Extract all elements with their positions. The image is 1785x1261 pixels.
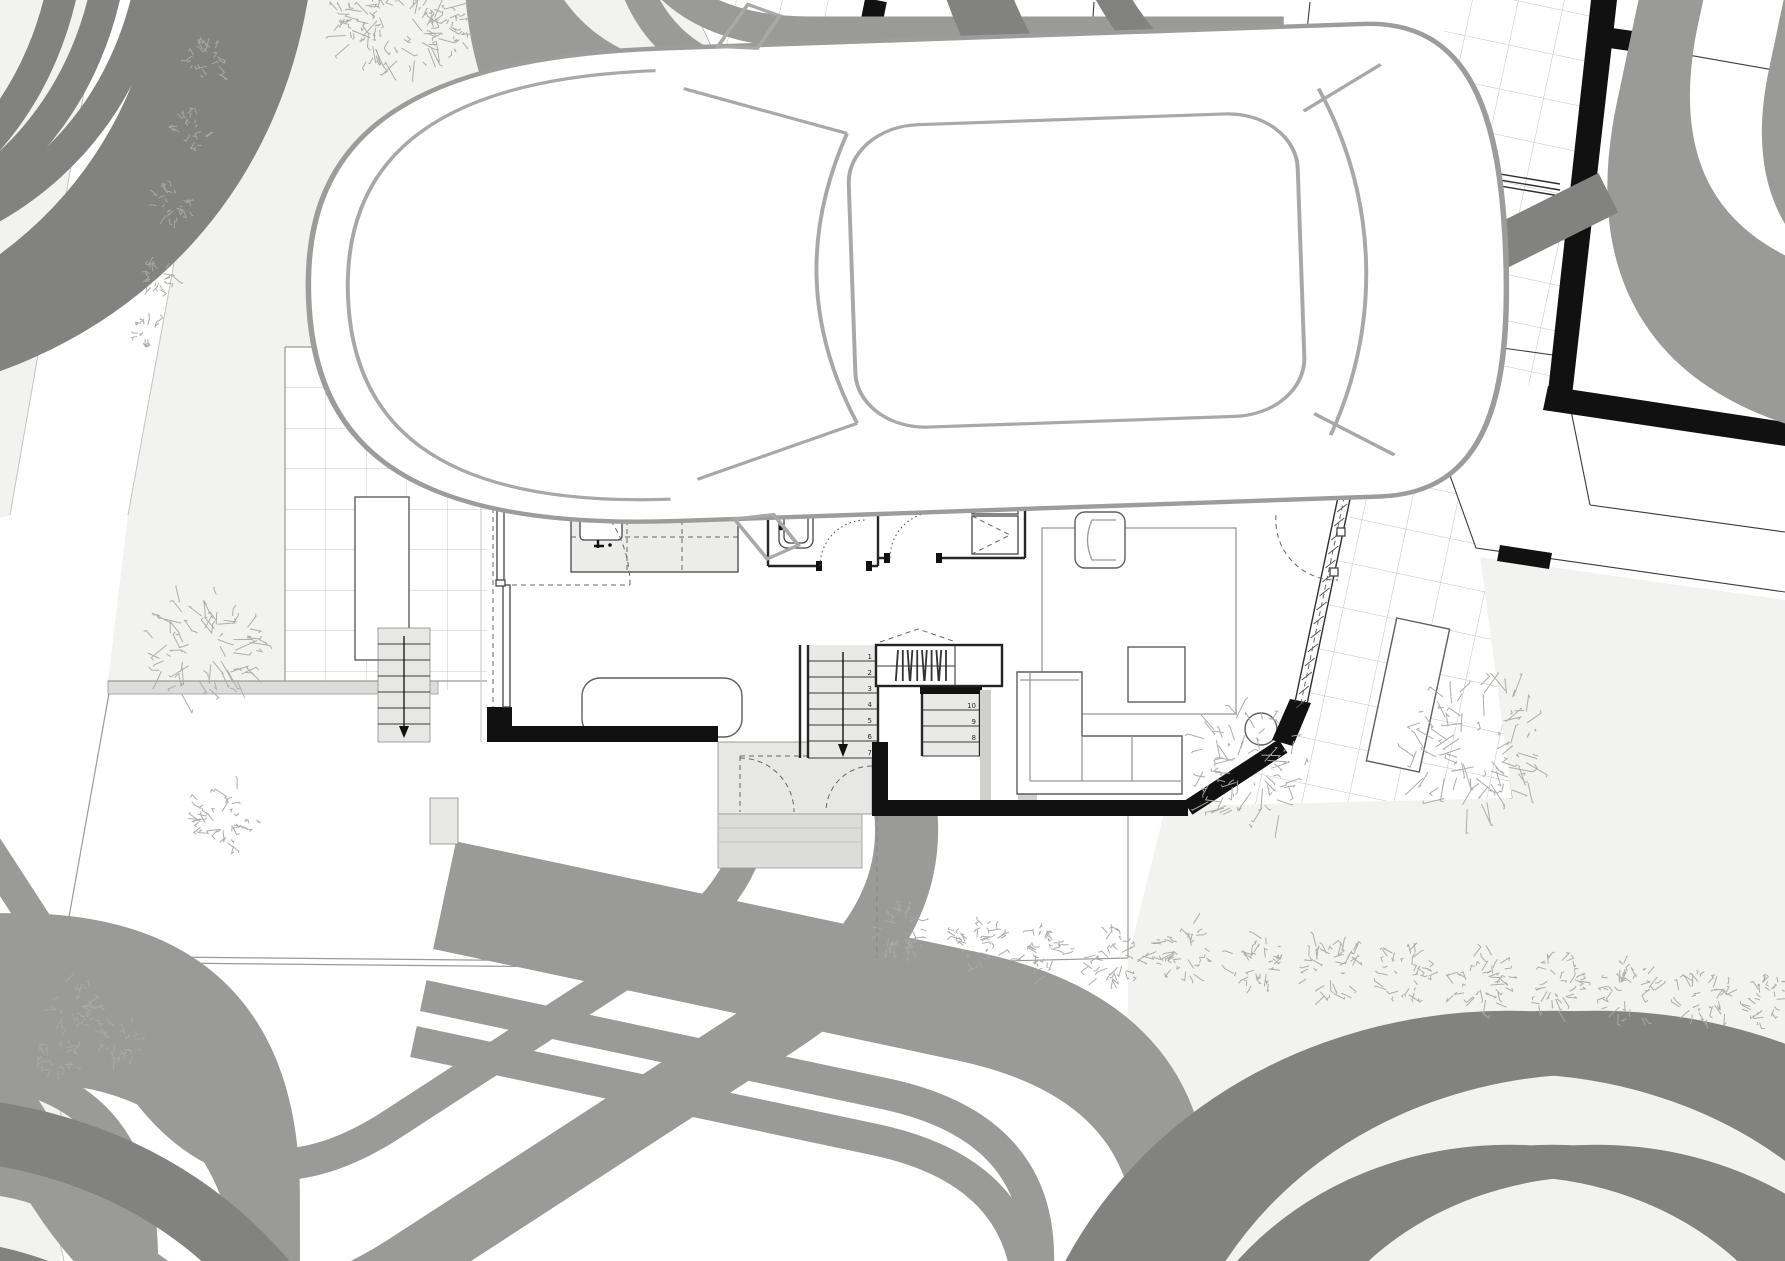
stair-number: 5 [868, 717, 872, 725]
floor-plan-page: 1 2 3 4 5 6 7 8 9 10 [0, 0, 1785, 1261]
dryer [972, 516, 1018, 554]
south-wall-dining [487, 726, 718, 742]
stair-number: 1 [868, 653, 872, 661]
sink-control [608, 543, 612, 547]
slider-handle [496, 580, 505, 586]
stair-number: 10 [967, 702, 976, 710]
car-driveway [299, 0, 1516, 575]
entry-porch-slab [718, 814, 862, 868]
slider-panel-2 [503, 585, 510, 707]
porch-side-wall [872, 742, 888, 804]
tree-scribble [188, 776, 260, 854]
coffee-table [1128, 647, 1185, 702]
stair-number: 7 [868, 749, 872, 757]
floor-plan-canvas: 1 2 3 4 5 6 7 8 9 10 [0, 0, 1785, 1261]
stair-number: 2 [868, 669, 872, 677]
stair-number: 8 [972, 734, 976, 742]
stair-number: 3 [868, 685, 872, 693]
stair-number: 4 [868, 701, 873, 709]
door-jamb [866, 561, 872, 571]
stair-number: 6 [868, 733, 873, 741]
glass-handle-1 [1337, 528, 1345, 536]
door-jamb [884, 553, 890, 563]
door-jamb [936, 553, 942, 563]
side-table [1245, 713, 1277, 745]
stair-lower-landing [430, 798, 458, 844]
plot-boundary-west [62, 688, 110, 956]
south-wall-living [872, 800, 1188, 816]
stair-flight-b-edge [920, 686, 982, 694]
stair-number: 9 [972, 718, 976, 726]
glass-handle-2 [1330, 568, 1338, 576]
door-jamb [816, 561, 822, 571]
lower-wall-strip-1 [980, 690, 991, 802]
